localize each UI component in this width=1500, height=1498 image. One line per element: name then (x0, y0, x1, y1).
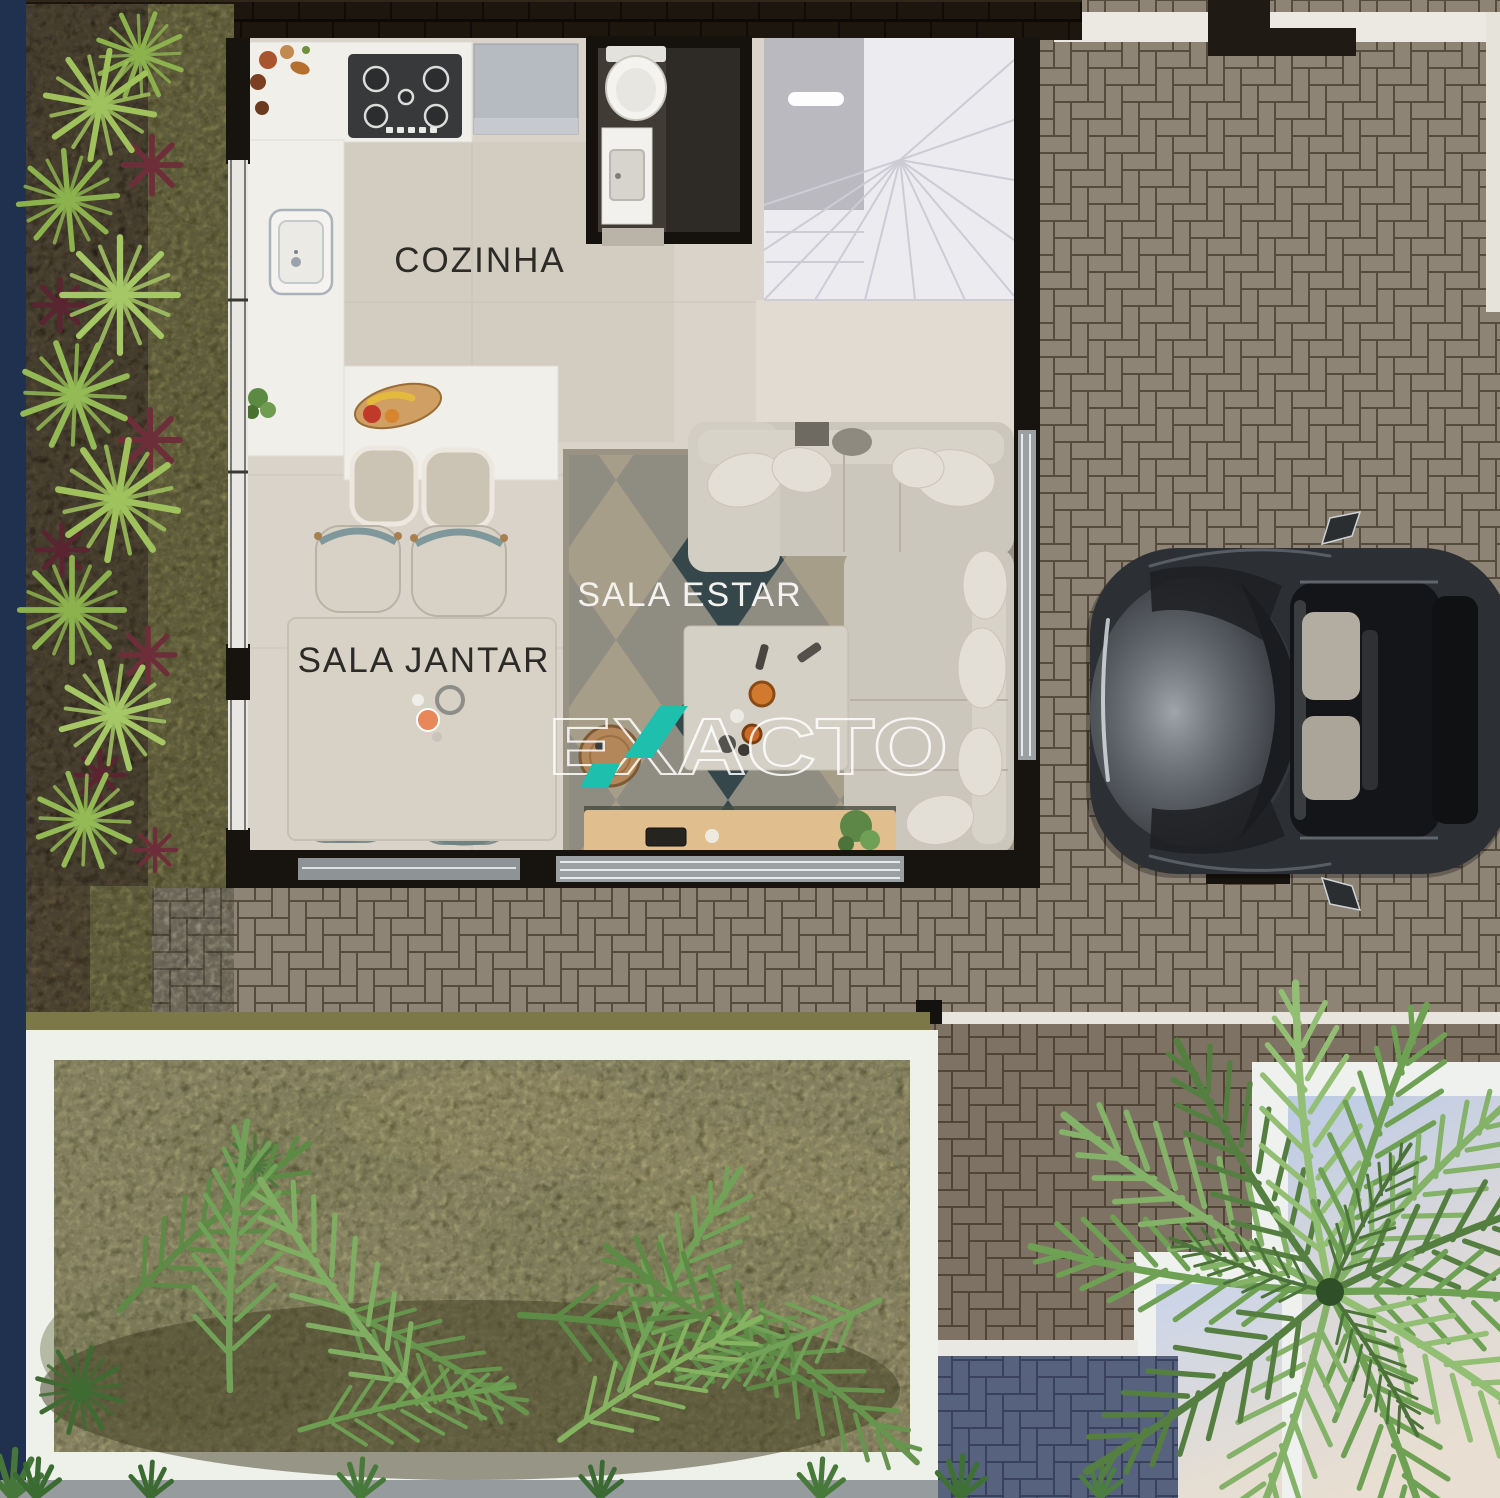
side-glass-door (1018, 430, 1036, 760)
left-boundary-wall (0, 0, 26, 1498)
car (1086, 512, 1500, 910)
dining-room-label: SALA JANTAR (298, 641, 551, 680)
patio-glass-door (298, 856, 904, 882)
kitchen-sink (270, 210, 332, 294)
staircase (764, 38, 1014, 300)
floor-plan-rendering: COZINHA LAVABO (0, 0, 1500, 1498)
toilet (606, 46, 666, 120)
powder-room: LAVABO (592, 42, 746, 246)
car-seat (1302, 716, 1360, 800)
cooktop (348, 54, 462, 138)
vanity-sink (602, 128, 652, 224)
car-seat (1302, 612, 1360, 700)
floor-plan-canvas: COZINHA LAVABO (0, 0, 1500, 1498)
backyard (26, 1030, 942, 1495)
living-room: SALA ESTAR (566, 422, 1014, 862)
kitchen-label: COZINHA (394, 241, 566, 280)
right-boundary-wall (1486, 12, 1500, 312)
dining-chair (410, 526, 508, 616)
powder-room-label: LAVABO (677, 72, 713, 219)
stair-handrail (788, 92, 844, 106)
dining-chair (314, 526, 402, 612)
window-left (228, 160, 248, 830)
exacto-watermark: EXACTO (548, 702, 948, 791)
living-room-label: SALA ESTAR (577, 576, 802, 614)
navy-paver-patio (938, 1340, 1178, 1498)
side-garden (0, 0, 234, 1032)
